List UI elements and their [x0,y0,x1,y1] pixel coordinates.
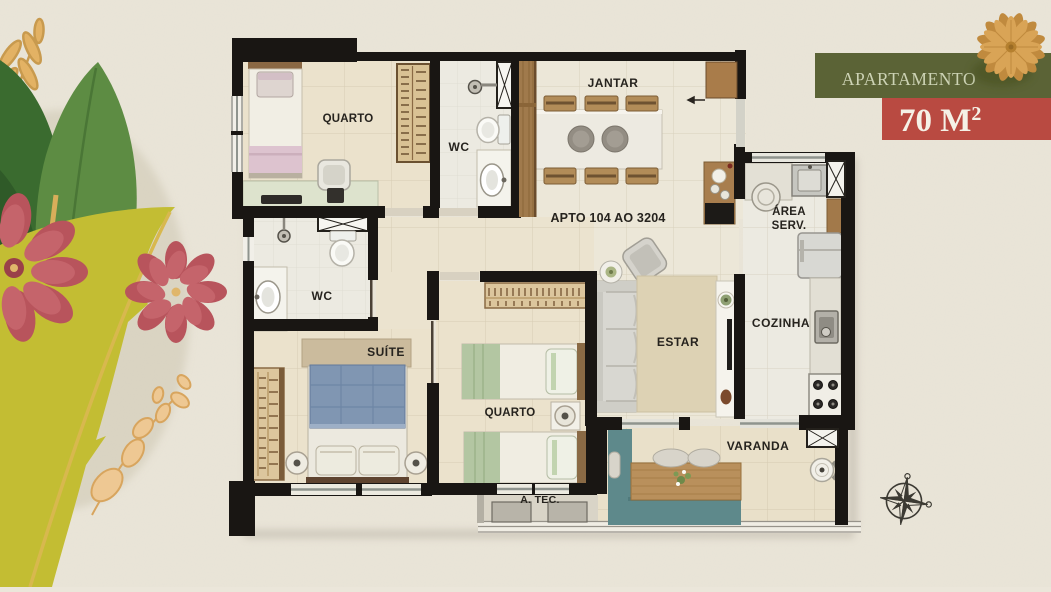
svg-text:VARANDA: VARANDA [727,439,790,453]
svg-text:Á. TEC.: Á. TEC. [520,493,559,506]
svg-text:JANTAR: JANTAR [588,76,639,90]
svg-text:ESTAR: ESTAR [657,335,699,349]
svg-text:ÁREA: ÁREA [772,205,806,218]
svg-text:WC: WC [449,140,470,154]
svg-text:SERV.: SERV. [772,220,807,232]
svg-text:QUARTO: QUARTO [323,113,374,125]
svg-text:COZINHA: COZINHA [752,316,810,330]
svg-text:WC: WC [312,289,333,303]
svg-text:APARTAMENTO: APARTAMENTO [842,69,976,89]
svg-text:70 M2: 70 M2 [899,103,981,139]
svg-text:APTO 104 AO 3204: APTO 104 AO 3204 [550,211,665,225]
svg-text:QUARTO: QUARTO [485,407,536,419]
svg-text:SUÍTE: SUÍTE [367,344,405,359]
